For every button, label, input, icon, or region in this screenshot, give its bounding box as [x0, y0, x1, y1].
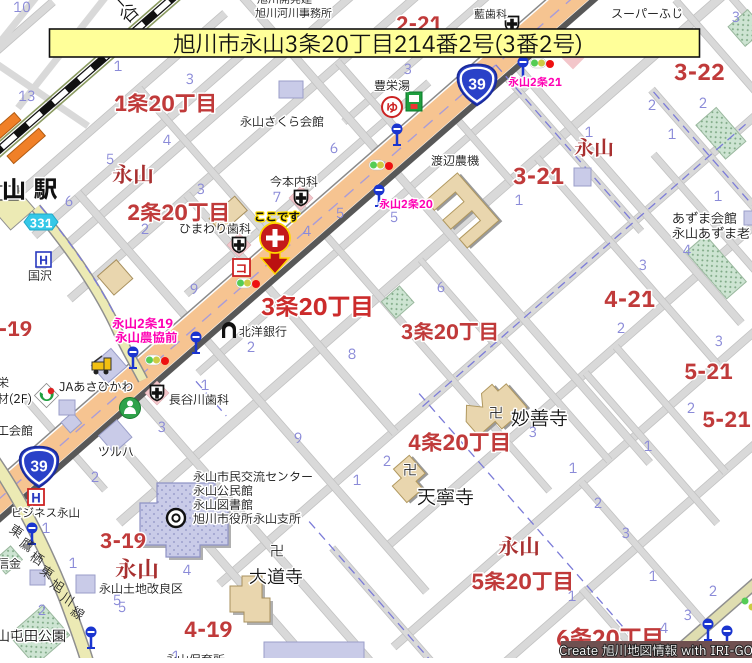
svg-text:39: 39: [30, 459, 48, 476]
svg-text:39: 39: [468, 77, 486, 94]
